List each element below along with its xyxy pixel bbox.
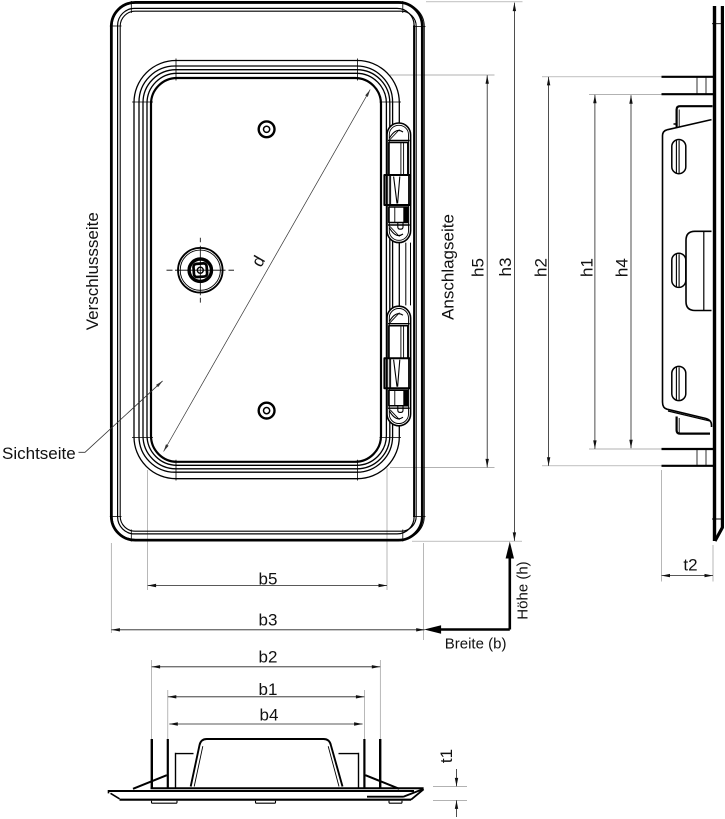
svg-text:t1: t1 bbox=[437, 749, 456, 763]
svg-text:Breite (b): Breite (b) bbox=[445, 636, 507, 653]
svg-text:d: d bbox=[248, 252, 269, 270]
svg-text:Höhe (h): Höhe (h) bbox=[515, 561, 532, 619]
svg-text:Verschlussseite: Verschlussseite bbox=[83, 212, 102, 330]
svg-text:b3: b3 bbox=[259, 610, 278, 629]
svg-text:Sichtseite: Sichtseite bbox=[2, 444, 76, 463]
svg-text:b5: b5 bbox=[259, 570, 278, 589]
svg-text:h3: h3 bbox=[496, 258, 515, 277]
svg-text:t2: t2 bbox=[683, 555, 697, 574]
svg-text:Anschlagseite: Anschlagseite bbox=[438, 214, 457, 320]
svg-text:b4: b4 bbox=[260, 705, 279, 724]
svg-text:h4: h4 bbox=[613, 258, 632, 277]
svg-text:h1: h1 bbox=[578, 258, 597, 277]
svg-text:h2: h2 bbox=[531, 258, 550, 277]
svg-text:b2: b2 bbox=[259, 648, 278, 667]
svg-text:b1: b1 bbox=[259, 680, 278, 699]
svg-text:h5: h5 bbox=[469, 258, 488, 277]
